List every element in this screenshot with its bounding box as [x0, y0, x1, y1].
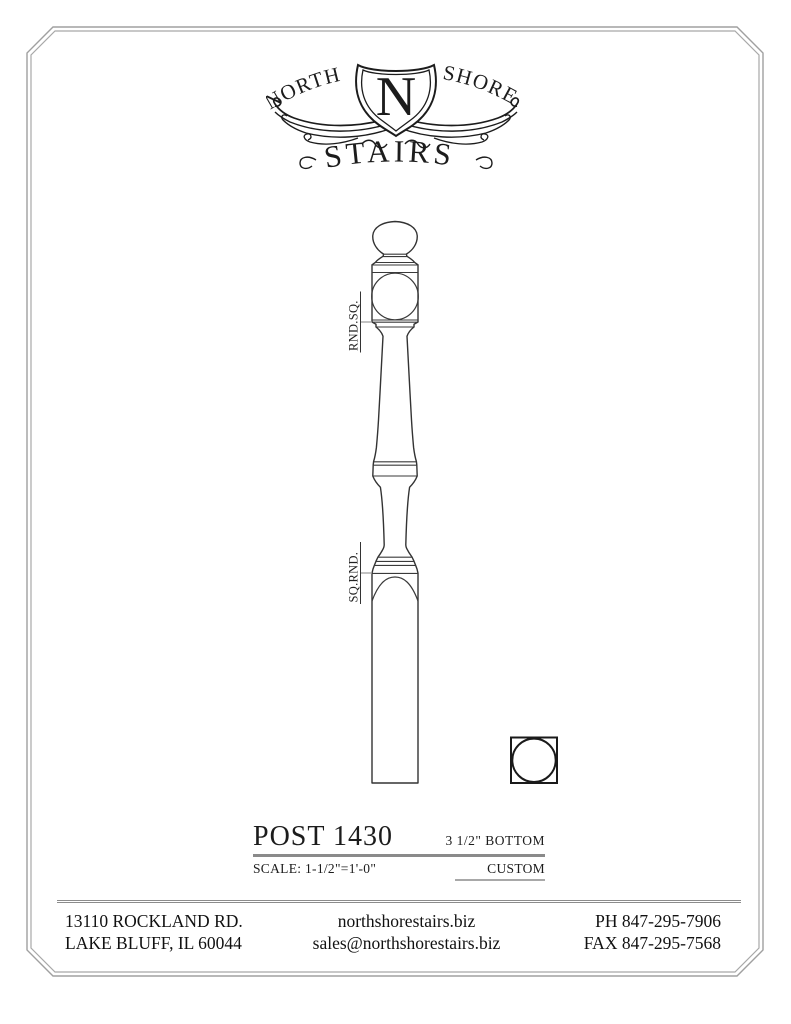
category-underline — [455, 879, 545, 881]
post-drawing: RND.SQ. SQ.RND. — [330, 215, 570, 795]
phone-text: PH 847-295-7906 — [541, 910, 721, 932]
logo-word-stairs: STAIRS — [322, 133, 458, 174]
section-view — [511, 738, 557, 784]
category-text: CUSTOM — [487, 861, 545, 877]
footer-web: northshorestairs.biz sales@northshoresta… — [272, 910, 541, 954]
section-circle — [512, 739, 555, 782]
post-outline — [372, 222, 418, 784]
logo-shield: N — [356, 65, 436, 136]
sq-rnd-label: SQ.RND. — [347, 552, 361, 603]
logo-monogram: N — [376, 66, 416, 128]
footer-double-rule — [57, 900, 741, 903]
scale-text: SCALE: 1-1/2"=1'-0" — [253, 861, 376, 877]
footer-contact: PH 847-295-7906 FAX 847-295-7568 — [541, 910, 741, 954]
address-line-1: 13110 ROCKLAND RD. — [65, 910, 272, 932]
address-line-2: LAKE BLUFF, IL 60044 — [65, 932, 272, 954]
email-text: sales@northshorestairs.biz — [272, 932, 541, 954]
website-text: northshorestairs.biz — [272, 910, 541, 932]
footer-address: 13110 ROCKLAND RD. LAKE BLUFF, IL 60044 — [57, 910, 272, 954]
logo-word-shore: SHORE — [441, 60, 522, 109]
rnd-sq-label: RND.SQ. — [347, 300, 361, 351]
drawing-title: POST 1430 — [253, 823, 393, 851]
bottom-size-spec: 3 1/2" BOTTOM — [445, 833, 545, 851]
logo-word-north: NORTH — [266, 62, 343, 114]
rnd-sq-callout: RND.SQ. — [347, 292, 373, 353]
company-logo: N NORTH SHORE STAIRS — [266, 56, 526, 181]
title-block: POST 1430 3 1/2" BOTTOM SCALE: 1-1/2"=1'… — [253, 823, 545, 881]
fax-text: FAX 847-295-7568 — [541, 932, 721, 954]
sq-rnd-callout: SQ.RND. — [347, 542, 373, 604]
footer: 13110 ROCKLAND RD. LAKE BLUFF, IL 60044 … — [57, 910, 741, 954]
title-rule — [253, 854, 545, 857]
spec-sheet-page: N NORTH SHORE STAIRS — [0, 0, 791, 1024]
